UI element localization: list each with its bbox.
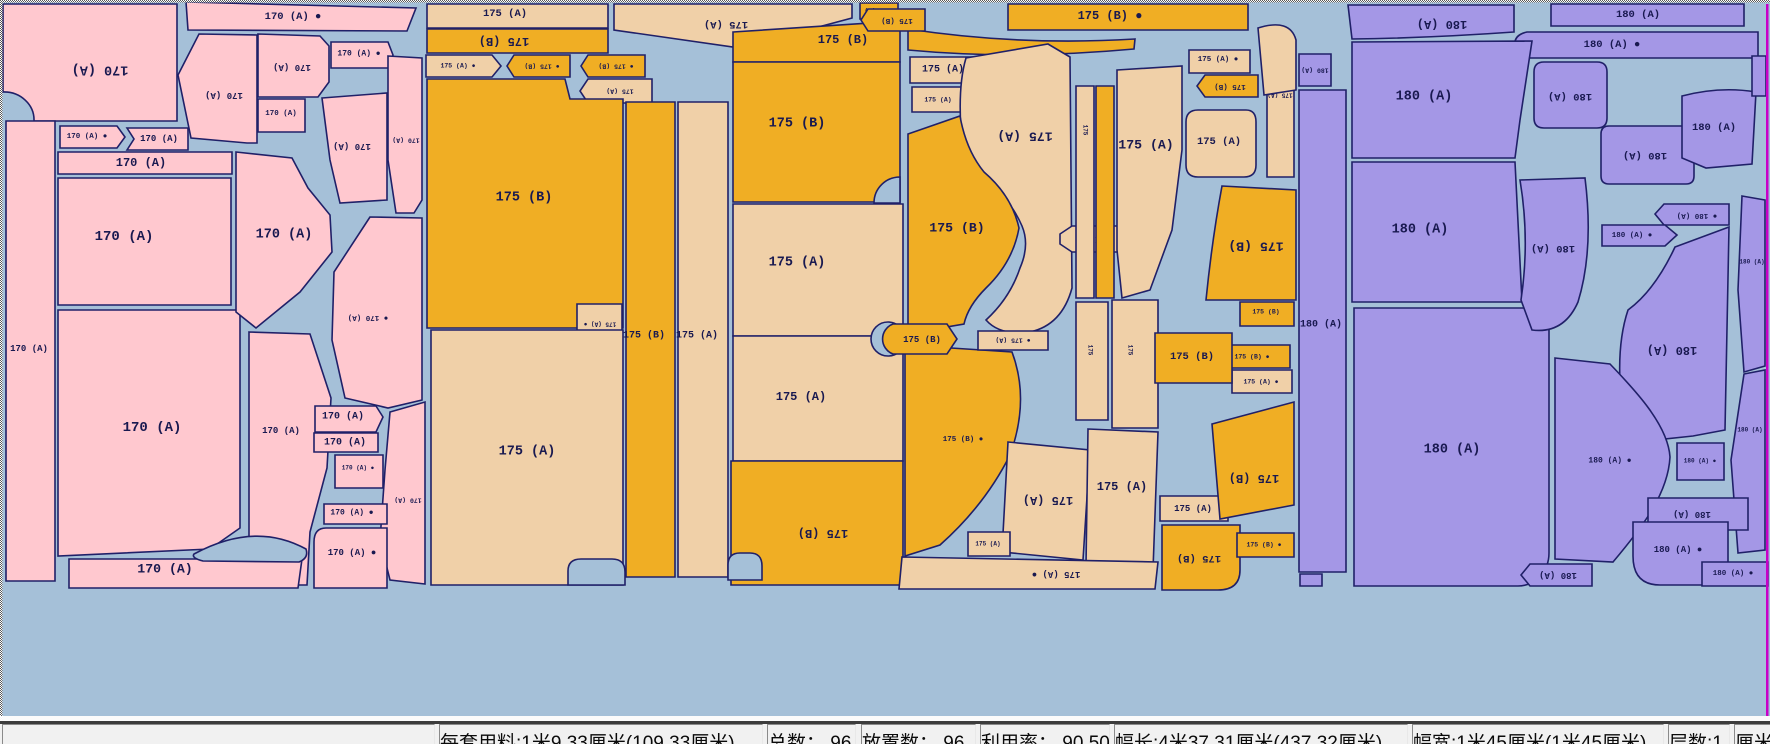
svg-text:170 (A): 170 (A) bbox=[333, 141, 371, 151]
svg-text:175 (A): 175 (A) bbox=[499, 445, 556, 460]
svg-text:175 (B) ●: 175 (B) ● bbox=[943, 436, 984, 444]
svg-text:180 (A) ●: 180 (A) ● bbox=[1713, 570, 1754, 578]
svg-text:175 (A): 175 (A) bbox=[1023, 493, 1073, 507]
svg-text:175 (B): 175 (B) bbox=[903, 335, 941, 345]
svg-text:170 (A): 170 (A) bbox=[394, 497, 421, 504]
svg-text:170 (A): 170 (A) bbox=[116, 156, 166, 170]
svg-text:175: 175 bbox=[1082, 125, 1089, 136]
svg-text:170 (A): 170 (A) bbox=[140, 134, 178, 144]
svg-text:175 (A): 175 (A) bbox=[1118, 138, 1173, 153]
svg-text:170 (A) ●: 170 (A) ● bbox=[67, 133, 108, 141]
svg-text:180 (A): 180 (A) bbox=[1616, 9, 1660, 21]
svg-text:170 (A): 170 (A) bbox=[256, 228, 313, 243]
svg-text:170 (A): 170 (A) bbox=[72, 62, 129, 77]
svg-text:175 (A): 175 (A) bbox=[922, 64, 964, 76]
svg-text:175 (A): 175 (A) bbox=[483, 8, 527, 20]
svg-text:175 (A) ●: 175 (A) ● bbox=[1032, 569, 1081, 579]
svg-text:180 (A): 180 (A) bbox=[1300, 319, 1342, 331]
svg-text:175 (A) ●: 175 (A) ● bbox=[1243, 379, 1278, 386]
svg-text:180 (A): 180 (A) bbox=[1737, 427, 1762, 434]
svg-text:170 (A) ●: 170 (A) ● bbox=[337, 50, 380, 59]
svg-text:175 (B) ●: 175 (B) ● bbox=[1078, 9, 1143, 23]
svg-text:170 (A): 170 (A) bbox=[10, 344, 48, 354]
svg-text:180 (A): 180 (A) bbox=[1424, 443, 1481, 458]
svg-text:175: 175 bbox=[1087, 345, 1094, 356]
svg-text:175 (B): 175 (B) bbox=[479, 34, 529, 48]
svg-text:180 (A) ●: 180 (A) ● bbox=[1612, 232, 1653, 240]
svg-text:170 (A) ●: 170 (A) ● bbox=[328, 548, 377, 558]
svg-text:180 (A) ●: 180 (A) ● bbox=[1584, 39, 1641, 51]
svg-text:170 (A): 170 (A) bbox=[123, 420, 182, 436]
svg-text:170 (A) ●: 170 (A) ● bbox=[342, 465, 375, 472]
svg-text:180 (A) ●: 180 (A) ● bbox=[1588, 457, 1631, 466]
svg-text:175 (A): 175 (A) bbox=[975, 541, 1000, 548]
svg-text:● 175 (B): ● 175 (B) bbox=[598, 63, 633, 70]
svg-text:175 (A): 175 (A) bbox=[1097, 480, 1147, 494]
svg-text:175 (B) ●: 175 (B) ● bbox=[1234, 354, 1269, 361]
svg-text:180 (A): 180 (A) bbox=[1396, 90, 1453, 105]
svg-text:180 (A): 180 (A) bbox=[1673, 509, 1711, 519]
svg-text:170 (A): 170 (A) bbox=[265, 110, 297, 118]
svg-text:180 (A): 180 (A) bbox=[1417, 17, 1467, 31]
svg-text:180 (A) ●: 180 (A) ● bbox=[1654, 545, 1703, 555]
svg-text:170 (A): 170 (A) bbox=[137, 562, 192, 577]
svg-text:● 170 (A): ● 170 (A) bbox=[348, 313, 389, 321]
svg-text:180 (A): 180 (A) bbox=[1623, 149, 1667, 161]
svg-text:175 (A): 175 (A) bbox=[1197, 136, 1241, 148]
svg-text:● 175 (A): ● 175 (A) bbox=[995, 337, 1030, 344]
svg-text:175 (B): 175 (B) bbox=[1177, 552, 1221, 564]
svg-text:170 (A): 170 (A) bbox=[322, 411, 364, 423]
svg-text:175 (B): 175 (B) bbox=[929, 221, 984, 236]
svg-text:175 (A): 175 (A) bbox=[704, 18, 748, 30]
svg-text:175 (A): 175 (A) bbox=[997, 129, 1052, 144]
svg-text:180 (A): 180 (A) bbox=[1739, 259, 1764, 266]
svg-text:180 (A): 180 (A) bbox=[1392, 223, 1449, 238]
svg-text:175 (B): 175 (B) bbox=[798, 526, 848, 540]
svg-text:175 (A) ●: 175 (A) ● bbox=[440, 63, 475, 70]
svg-text:175 (B): 175 (B) bbox=[769, 117, 826, 132]
svg-text:170 (A): 170 (A) bbox=[392, 137, 419, 144]
svg-text:175 (B): 175 (B) bbox=[496, 191, 553, 206]
svg-text:175 (A): 175 (A) bbox=[776, 390, 826, 404]
svg-text:● 175 (B): ● 175 (B) bbox=[524, 63, 559, 70]
svg-text:175 (B): 175 (B) bbox=[1170, 351, 1214, 363]
svg-text:180 (A): 180 (A) bbox=[1531, 242, 1575, 254]
svg-text:175 (A): 175 (A) bbox=[1174, 504, 1212, 514]
svg-text:180 (A): 180 (A) bbox=[1647, 343, 1697, 357]
svg-text:175 (A): 175 (A) bbox=[676, 330, 718, 342]
svg-text:175 (B): 175 (B) bbox=[1228, 239, 1283, 254]
svg-text:175 (A) ●: 175 (A) ● bbox=[1198, 56, 1239, 64]
svg-text:175 (B): 175 (B) bbox=[818, 33, 868, 47]
svg-text:175 (A) ●: 175 (A) ● bbox=[583, 321, 616, 328]
svg-text:175 (B): 175 (B) bbox=[881, 16, 913, 24]
svg-text:175 (A): 175 (A) bbox=[924, 97, 951, 104]
svg-text:180 (A): 180 (A) bbox=[1539, 570, 1577, 580]
svg-text:175 (B): 175 (B) bbox=[1229, 471, 1279, 485]
svg-text:170 (A): 170 (A) bbox=[262, 426, 300, 436]
svg-text:170 (A): 170 (A) bbox=[205, 90, 243, 100]
svg-text:175 (B): 175 (B) bbox=[623, 330, 665, 342]
svg-text:170 (A) ●: 170 (A) ● bbox=[330, 509, 373, 518]
svg-text:170 (A): 170 (A) bbox=[273, 62, 311, 72]
svg-text:175 (B): 175 (B) bbox=[1214, 82, 1246, 90]
svg-text:175 (A): 175 (A) bbox=[769, 256, 826, 271]
svg-text:170 (A): 170 (A) bbox=[95, 229, 154, 245]
svg-text:180 (A): 180 (A) bbox=[1548, 90, 1592, 102]
svg-text:175 (B): 175 (B) bbox=[1252, 309, 1279, 316]
svg-text:180 (A) ●: 180 (A) ● bbox=[1684, 458, 1717, 465]
svg-text:170 (A) ●: 170 (A) ● bbox=[265, 11, 322, 23]
svg-text:180 (A): 180 (A) bbox=[1692, 122, 1736, 134]
svg-text:175: 175 bbox=[1127, 345, 1134, 356]
svg-text:170 (A): 170 (A) bbox=[324, 437, 366, 449]
svg-text:180 (A): 180 (A) bbox=[1301, 67, 1328, 74]
svg-text:175 (B) ●: 175 (B) ● bbox=[1246, 542, 1281, 549]
svg-text:175 (A): 175 (A) bbox=[606, 88, 633, 95]
svg-text:● 180 (A): ● 180 (A) bbox=[1677, 211, 1718, 219]
